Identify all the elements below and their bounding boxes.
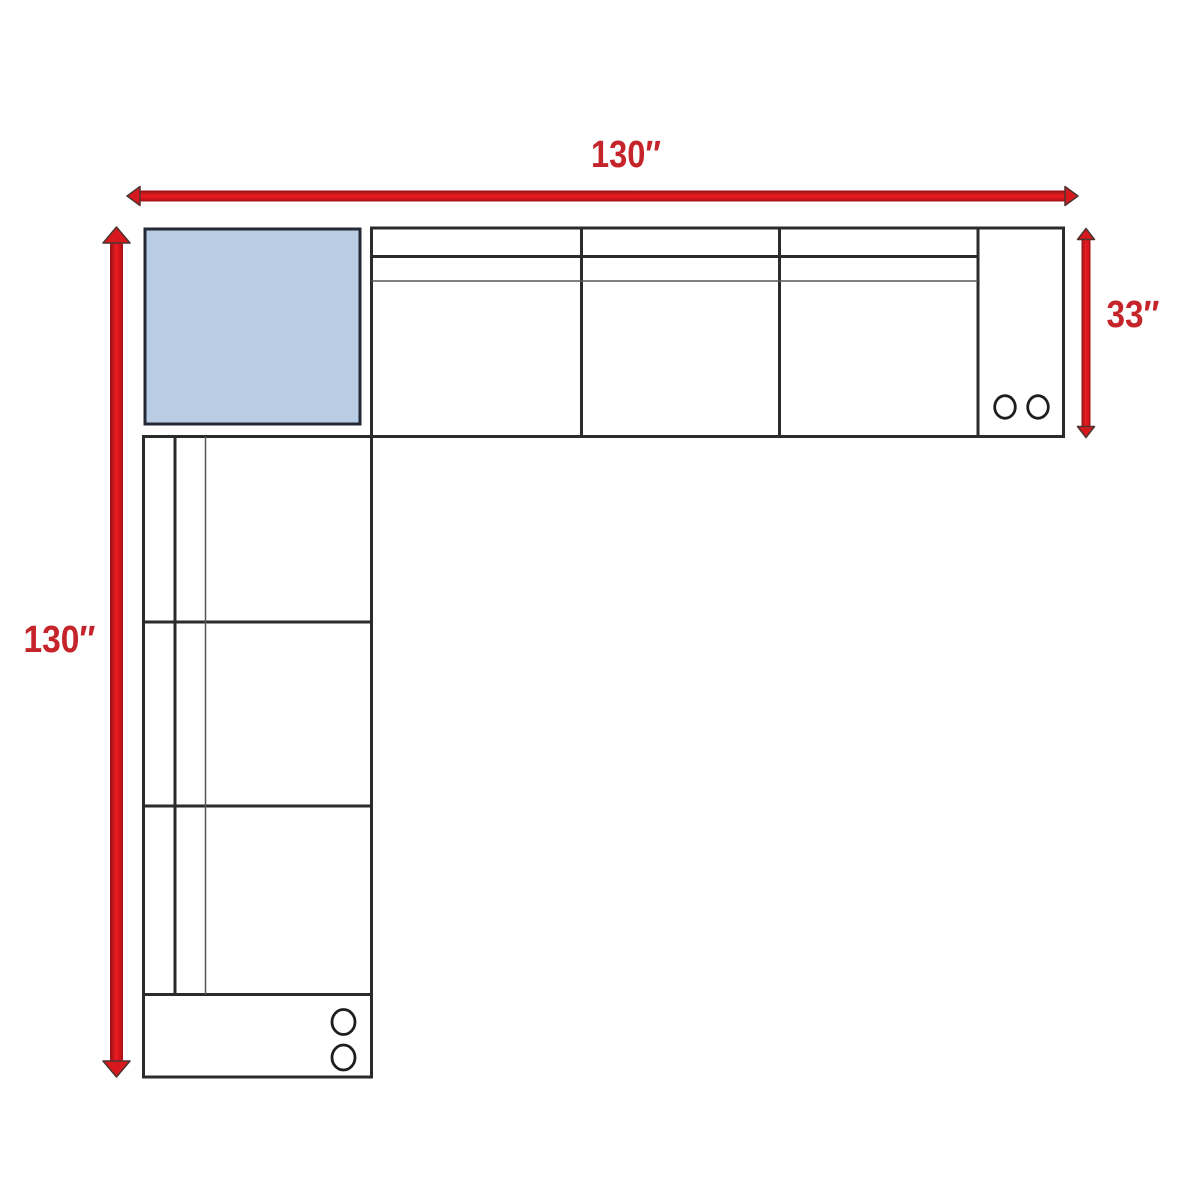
svg-text:130″: 130″ [24,619,96,661]
svg-text:33″: 33″ [1107,294,1160,336]
svg-text:130″: 130″ [591,134,661,176]
